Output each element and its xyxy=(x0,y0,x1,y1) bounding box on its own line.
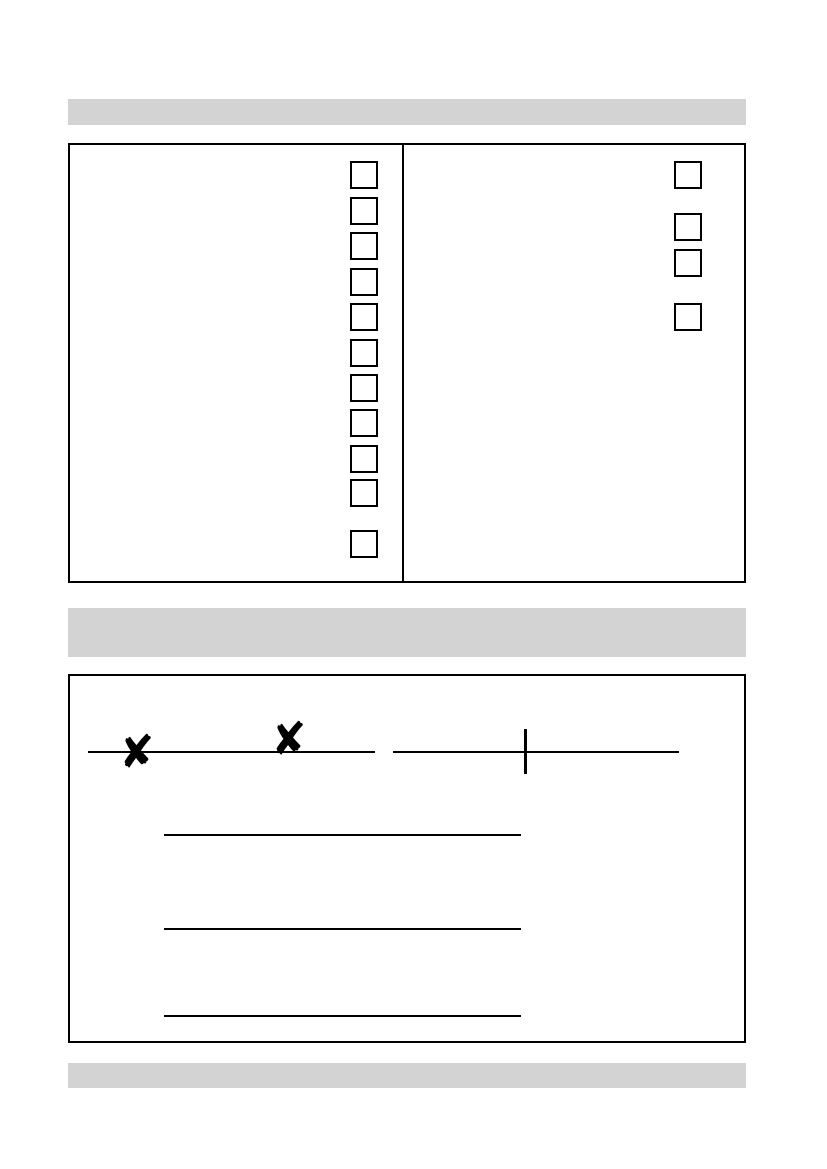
checkbox[interactable] xyxy=(350,197,378,225)
checkbox[interactable] xyxy=(350,303,378,331)
checkbox[interactable] xyxy=(350,445,378,473)
checkbox[interactable] xyxy=(674,249,702,277)
signature-line[interactable] xyxy=(164,928,521,930)
checkbox[interactable] xyxy=(350,530,378,558)
checkbox[interactable] xyxy=(350,232,378,260)
section-header-bar-bottom xyxy=(68,1063,746,1088)
signature-section-box: ✘ ✘ xyxy=(68,674,746,1043)
checkbox[interactable] xyxy=(674,303,702,331)
checkbox[interactable] xyxy=(350,374,378,402)
column-divider xyxy=(402,145,404,581)
signature-line[interactable] xyxy=(164,1015,521,1017)
marked-rule-left xyxy=(88,751,375,753)
signature-line[interactable] xyxy=(164,834,521,836)
checkbox-section-box xyxy=(68,143,746,583)
checkbox[interactable] xyxy=(350,409,378,437)
x-mark: ✘ xyxy=(270,719,309,761)
tick-mark xyxy=(524,729,527,774)
marked-rule-right xyxy=(393,751,679,753)
checkbox[interactable] xyxy=(350,479,378,507)
form-page: ✘ ✘ xyxy=(0,0,827,1169)
section-header-bar-top xyxy=(68,99,746,125)
checkbox[interactable] xyxy=(674,213,702,241)
section-header-bar-middle xyxy=(68,608,746,657)
checkbox[interactable] xyxy=(350,268,378,296)
checkbox[interactable] xyxy=(350,339,378,367)
checkbox[interactable] xyxy=(350,161,378,189)
checkbox[interactable] xyxy=(674,161,702,189)
x-mark: ✘ xyxy=(118,732,157,774)
